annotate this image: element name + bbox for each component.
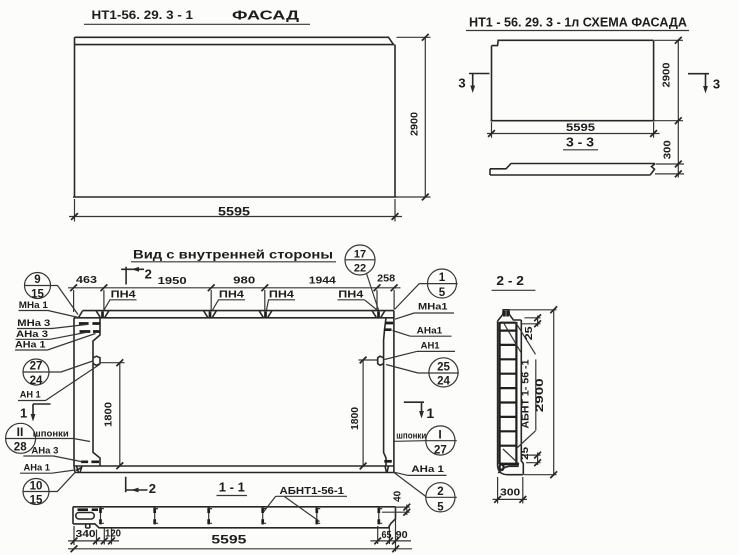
svg-text:2900: 2900 (409, 112, 421, 136)
svg-text:ПН4: ПН4 (111, 288, 136, 300)
svg-text:22: 22 (354, 263, 366, 275)
svg-text:90: 90 (396, 529, 408, 541)
svg-text:АНа 3: АНа 3 (16, 329, 48, 340)
svg-text:3: 3 (458, 76, 465, 91)
svg-text:АНа 1: АНа 1 (24, 463, 51, 474)
svg-text:340: 340 (76, 528, 96, 540)
svg-text:3: 3 (713, 77, 720, 92)
svg-text:120: 120 (105, 527, 121, 539)
svg-text:2: 2 (149, 481, 156, 496)
svg-text:25: 25 (524, 326, 535, 341)
svg-text:1800: 1800 (349, 407, 361, 430)
svg-text:шпонки: шпонки (33, 429, 69, 440)
svg-text:2 - 2: 2 - 2 (496, 273, 524, 288)
svg-text:ПН4: ПН4 (269, 288, 294, 300)
svg-text:17: 17 (354, 249, 366, 261)
svg-text:1800: 1800 (103, 402, 115, 427)
svg-text:5: 5 (439, 287, 446, 299)
svg-text:1: 1 (426, 405, 434, 421)
svg-text:АНа 1: АНа 1 (15, 340, 46, 351)
svg-text:НТ1-56. 29. 3 - 1: НТ1-56. 29. 3 - 1 (92, 8, 194, 22)
svg-text:65: 65 (382, 529, 392, 541)
svg-text:Вид с внутренней стороны: Вид с внутренней стороны (133, 250, 333, 262)
svg-text:40: 40 (392, 490, 403, 501)
svg-text:2: 2 (437, 486, 443, 498)
svg-text:2900: 2900 (534, 378, 546, 412)
svg-text:15: 15 (31, 289, 44, 301)
svg-text:300: 300 (500, 486, 520, 498)
svg-text:3 - 3: 3 - 3 (566, 136, 594, 150)
svg-text:МНа 3: МНа 3 (17, 318, 50, 329)
svg-text:АНа 1: АНа 1 (411, 464, 444, 475)
svg-text:258: 258 (377, 273, 395, 285)
svg-text:МНа 1: МНа 1 (19, 300, 49, 311)
svg-text:25: 25 (520, 446, 531, 460)
svg-text:ФАСАД: ФАСАД (232, 9, 299, 23)
svg-text:300: 300 (661, 140, 673, 159)
svg-text:5595: 5595 (566, 122, 595, 134)
svg-text:II: II (17, 425, 24, 439)
svg-text:шпонки: шпонки (396, 431, 426, 442)
svg-text:АБНТ1-56-1: АБНТ1-56-1 (280, 485, 345, 497)
svg-text:27: 27 (30, 361, 43, 373)
svg-text:27: 27 (434, 445, 447, 457)
svg-text:АНа 3: АНа 3 (31, 446, 58, 457)
svg-text:АНа1: АНа1 (417, 326, 443, 337)
svg-text:9: 9 (34, 274, 40, 286)
svg-text:ПН4: ПН4 (219, 288, 244, 300)
svg-text:ПН4: ПН4 (338, 288, 363, 300)
svg-text:1: 1 (439, 272, 446, 284)
svg-text:980: 980 (233, 275, 255, 287)
svg-text:1: 1 (20, 406, 27, 421)
svg-text:2900: 2900 (661, 62, 673, 87)
svg-text:МНа1: МНа1 (418, 302, 448, 313)
svg-text:15: 15 (30, 495, 43, 507)
svg-text:25: 25 (437, 362, 450, 374)
svg-text:5595: 5595 (211, 535, 247, 547)
svg-text:5595: 5595 (218, 207, 251, 219)
svg-text:АБНТ 1- 56 -1: АБНТ 1- 56 -1 (520, 359, 531, 428)
svg-text:1 - 1: 1 - 1 (219, 480, 245, 495)
svg-text:2: 2 (145, 266, 152, 281)
svg-text:5: 5 (437, 502, 444, 514)
svg-text:24: 24 (30, 375, 43, 387)
svg-text:1950: 1950 (158, 275, 187, 287)
svg-text:463: 463 (76, 274, 97, 286)
svg-text:24: 24 (437, 376, 450, 388)
svg-text:I: I (438, 428, 441, 442)
svg-text:10: 10 (30, 481, 43, 493)
svg-text:НТ1 - 56. 29. 3 - 1л СХЕМА ФАС: НТ1 - 56. 29. 3 - 1л СХЕМА ФАСАДА (469, 16, 687, 30)
svg-text:1944: 1944 (309, 275, 336, 287)
svg-text:28: 28 (14, 442, 27, 454)
svg-text:АН1: АН1 (421, 341, 441, 352)
svg-text:АН 1: АН 1 (20, 390, 42, 401)
